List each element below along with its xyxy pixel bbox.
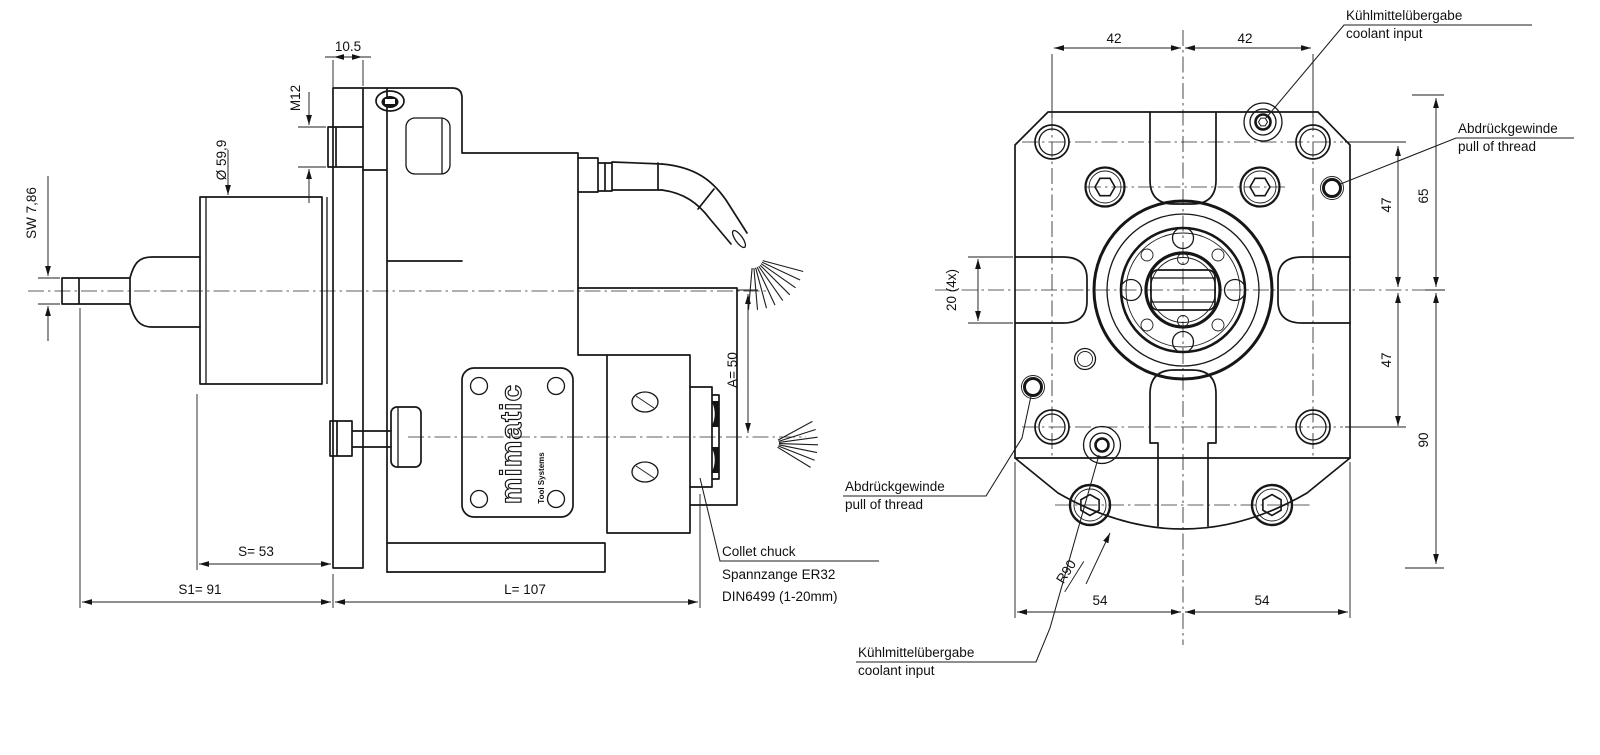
dim-90: 90 [1405, 293, 1444, 568]
faceplate-outline [1015, 112, 1350, 529]
spray-fan-output [778, 421, 819, 467]
coolant-bottom-label-de: Kühlmittelübergabe [858, 645, 974, 660]
dim-54-left-label: 54 [1092, 593, 1108, 608]
dim-42-right-label: 42 [1237, 31, 1252, 46]
side-view: mimatic Tool Systems SW 7,86 Ø 59,9 10.5… [24, 39, 879, 608]
dim-54-pair: 54 54 [1015, 462, 1350, 618]
pulloff-bottom-label-en: pull of thread [845, 497, 923, 512]
input-shaft [62, 257, 200, 327]
dim-diameter: Ø 59,9 [214, 140, 229, 195]
dim-diameter-label: Ø 59,9 [214, 140, 229, 181]
dim-65-label: 65 [1416, 188, 1431, 203]
housing-slot [406, 118, 450, 174]
drawing-canvas: mimatic Tool Systems SW 7,86 Ø 59,9 10.5… [0, 0, 1600, 755]
flange-plate [333, 88, 363, 568]
collet-note-line3: DIN6499 (1-20mm) [722, 589, 838, 604]
dim-m12: M12 [288, 85, 326, 203]
hex-screws [1070, 168, 1292, 526]
technical-drawing-sheet: mimatic Tool Systems SW 7,86 Ø 59,9 10.5… [0, 0, 1600, 755]
dim-plate-thickness: 10.5 [325, 39, 371, 122]
dim-47-upper-label: 47 [1379, 197, 1394, 212]
top-screw [376, 91, 404, 111]
leader-pulloff-bottom: Abdrückgewinde pull of thread [843, 396, 1031, 512]
leader-coolant-top: Kühlmittelübergabe coolant input [1266, 8, 1532, 118]
dim-s1-label: S1= 91 [178, 582, 221, 597]
keyway-slots [1015, 112, 1350, 526]
coolant-bottom-label-en: coolant input [858, 663, 935, 678]
brand-name: mimatic [495, 384, 528, 504]
dim-thickness-label: 10.5 [335, 39, 361, 54]
brand-tagline: Tool Systems [537, 452, 546, 504]
front-view: 42 42 47 47 65 90 54 54 [843, 8, 1574, 678]
dim-s: S= 53 [197, 394, 331, 570]
mounting-holes [1035, 125, 1330, 444]
collet-note-line2: Spannzange ER32 [722, 567, 835, 582]
clamp-lever [330, 407, 421, 467]
dim-m12-label: M12 [288, 85, 303, 111]
coolant-port-top [1244, 103, 1282, 141]
coolant-top-label-de: Kühlmittelübergabe [1346, 8, 1462, 23]
dim-a50: A= 50 [725, 290, 758, 433]
dim-r90: R90 [1050, 533, 1110, 592]
pulloff-hole-right [1321, 177, 1344, 200]
dim-47-upper: 47 [1345, 142, 1445, 290]
dim-65: 65 [1412, 95, 1444, 287]
pilot-hole-left [1075, 349, 1096, 370]
dim-54-right-label: 54 [1254, 593, 1270, 608]
housing-body [328, 88, 605, 572]
brand-nameplate: mimatic Tool Systems [462, 368, 573, 517]
dim-a-label: A= 50 [725, 352, 740, 388]
pulloff-right-label-en: pull of thread [1458, 139, 1536, 154]
dim-sw-label: SW 7,86 [24, 187, 39, 239]
front-view-centerlines [935, 30, 1425, 645]
clamp-cylinder [200, 197, 327, 384]
pulloff-hole-bottom-left [1022, 376, 1045, 399]
spray-fan-upper [749, 261, 804, 310]
dim-sw: SW 7,86 [24, 176, 60, 341]
dim-42-left-label: 42 [1106, 31, 1121, 46]
dim-s-label: S= 53 [238, 544, 274, 559]
coolant-hose [578, 158, 803, 310]
dim-47-lower-label: 47 [1379, 352, 1394, 367]
coolant-top-label-en: coolant input [1346, 26, 1423, 41]
dim-90-label: 90 [1416, 432, 1431, 447]
dim-42-pair: 42 42 [1052, 31, 1313, 118]
bottom-tab-arc [1015, 458, 1350, 529]
pulloff-bottom-label-de: Abdrückgewinde [845, 479, 945, 494]
nozzle-tip [730, 229, 747, 250]
dim-slot-label: 20 (4x) [944, 269, 959, 311]
dim-l-label: L= 107 [504, 582, 546, 597]
collet-note-line1: Collet chuck [722, 544, 796, 559]
output-head [578, 288, 818, 533]
dim-47-lower: 47 [1345, 293, 1406, 427]
pulloff-right-label-de: Abdrückgewinde [1458, 121, 1558, 136]
leader-pulloff-right: Abdrückgewinde pull of thread [1338, 121, 1574, 185]
